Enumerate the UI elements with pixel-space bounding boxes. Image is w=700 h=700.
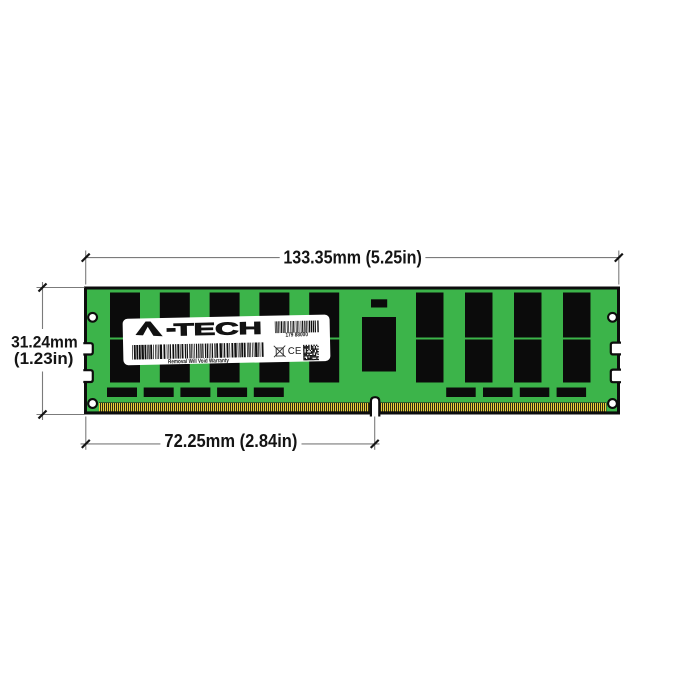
svg-text:CE: CE (288, 346, 302, 357)
svg-text:133.35mm (5.25in): 133.35mm (5.25in) (283, 247, 422, 268)
svg-text:72.25mm (2.84in): 72.25mm (2.84in) (164, 430, 297, 451)
svg-text:TECH: TECH (174, 318, 262, 340)
svg-text:179 88000: 179 88000 (285, 332, 308, 338)
svg-text:Removal Will Void Warranty: Removal Will Void Warranty (168, 358, 230, 365)
svg-text:(1.23in): (1.23in) (14, 349, 74, 368)
